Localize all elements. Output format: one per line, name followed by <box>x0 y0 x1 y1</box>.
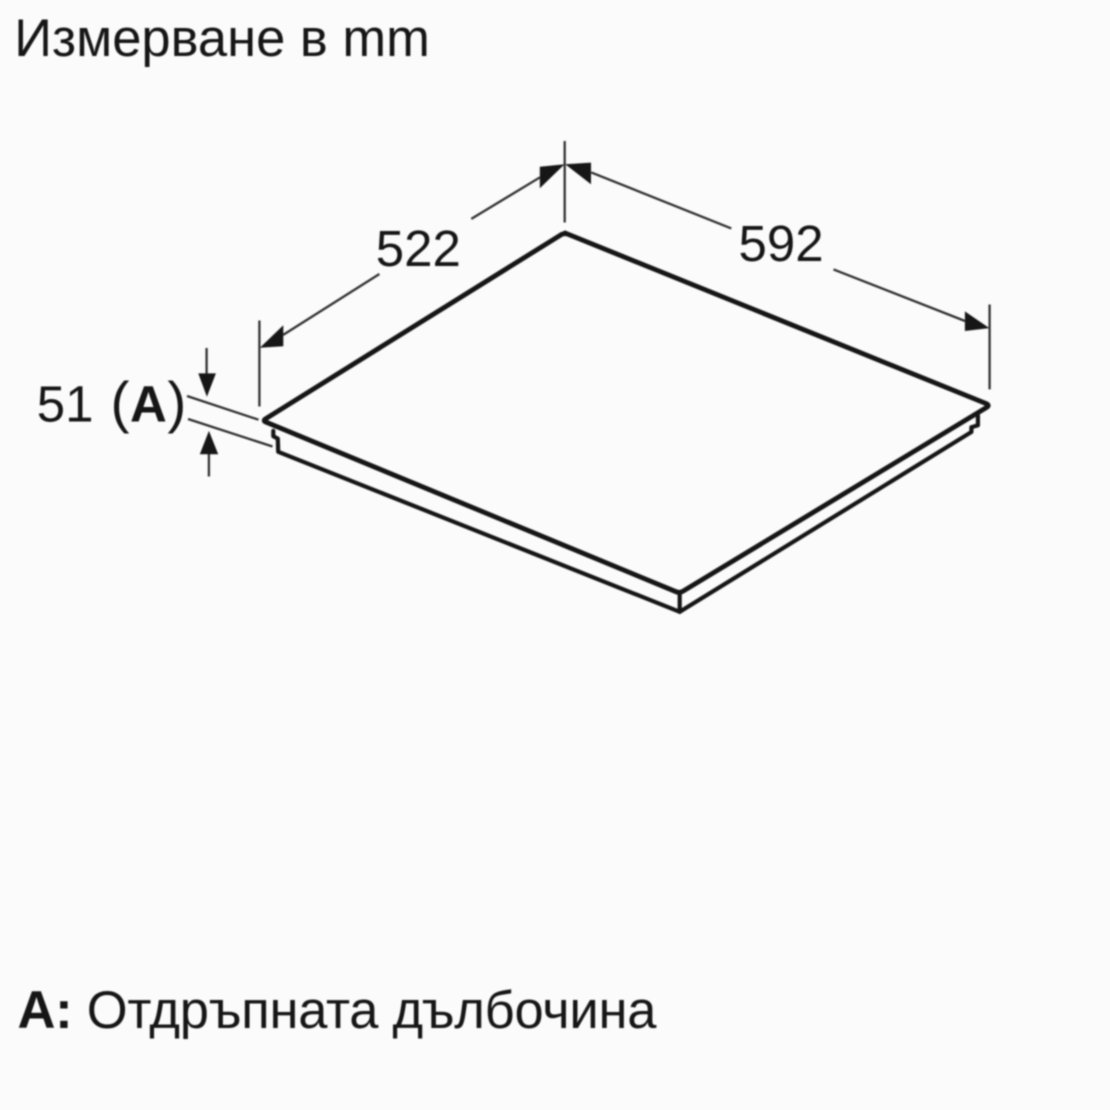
svg-text:51: 51 <box>37 376 94 433</box>
svg-text:(A): (A) <box>111 371 187 435</box>
svg-text:A: Отдръпната дълбочина: A: Отдръпната дълбочина <box>18 981 658 1040</box>
svg-text:522: 522 <box>376 220 461 277</box>
svg-text:Измерване в mm: Измерване в mm <box>14 9 430 68</box>
svg-text:592: 592 <box>739 215 824 272</box>
